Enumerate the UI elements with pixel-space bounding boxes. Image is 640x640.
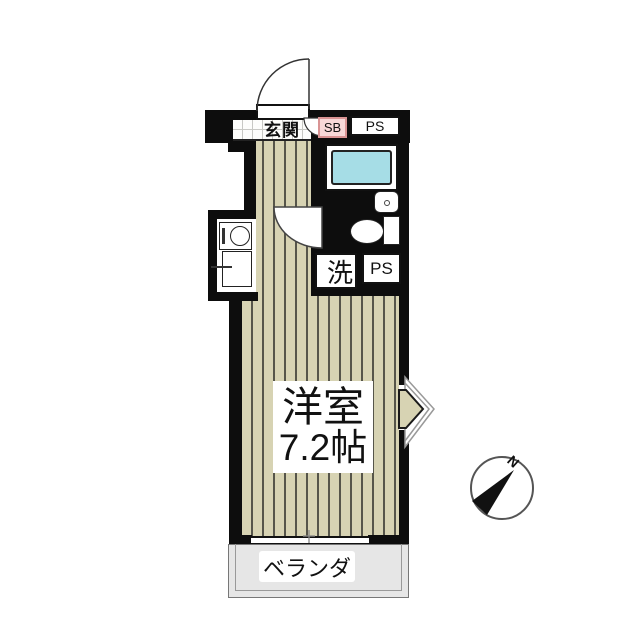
- genkan-label-text: 玄関: [264, 116, 300, 141]
- bay-window-outline-icon: [405, 377, 434, 447]
- shoe-box-label: SB: [324, 120, 341, 135]
- kitchen-sink: [222, 251, 252, 287]
- room-label: 洋室 7.2帖: [273, 381, 373, 473]
- bath-sink-drain-icon: [384, 200, 390, 206]
- balcony-label: ベランダ: [259, 551, 355, 582]
- wall-entrance-left: [205, 110, 233, 143]
- laundry-space: 洗: [315, 253, 357, 289]
- compass-needle-icon: [472, 470, 514, 515]
- toilet-bowl: [350, 219, 384, 244]
- pipe-space-mid-label: PS: [370, 259, 393, 279]
- shoe-box: SB: [318, 117, 347, 138]
- room-name: 洋室: [282, 386, 364, 429]
- stove-grip-icon: [222, 228, 225, 244]
- bay-window-sill-icon: [399, 390, 423, 428]
- bathtub: [331, 150, 392, 185]
- genkan-label: 玄関: [244, 118, 320, 138]
- wall-right-lower: [399, 430, 409, 545]
- wall-left-lower: [229, 292, 242, 545]
- stove-burner-icon: [230, 226, 250, 246]
- laundry-label: 洗: [327, 253, 353, 290]
- pipe-space-top-label: PS: [366, 118, 385, 134]
- compass-circle-icon: [471, 457, 533, 519]
- room-size: 7.2帖: [279, 429, 367, 467]
- balcony-label-text: ベランダ: [263, 551, 351, 583]
- compass: N: [471, 452, 533, 519]
- wall-left-upper: [244, 150, 256, 219]
- toilet-tank: [383, 216, 400, 245]
- floor-plan-canvas: SB PS 洗 PS 玄関 洋室 7.2帖 ベランダ: [0, 0, 640, 640]
- pipe-space-mid: PS: [362, 253, 401, 284]
- wall-kitchen-left: [208, 210, 217, 301]
- compass-north-label: N: [504, 452, 522, 471]
- pipe-space-top: PS: [350, 116, 400, 136]
